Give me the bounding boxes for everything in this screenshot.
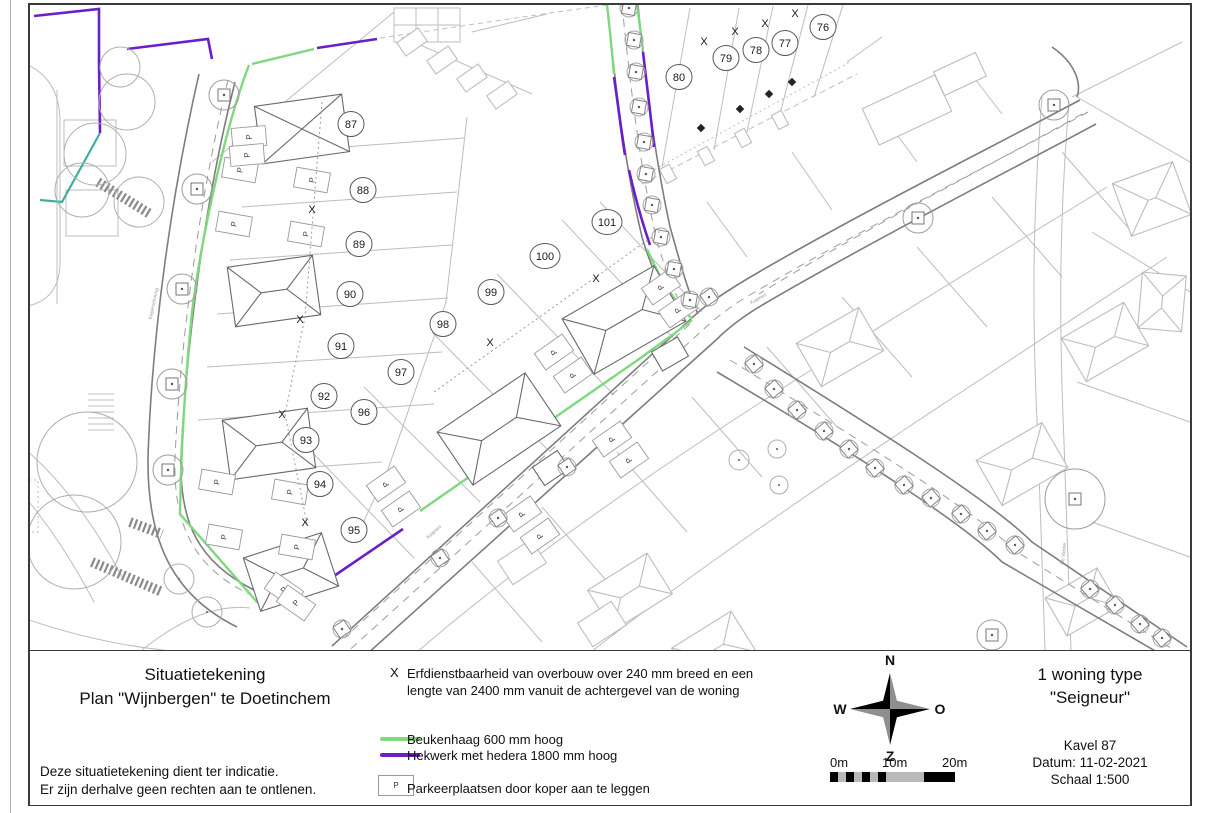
bollard xyxy=(765,90,773,98)
svg-text:101: 101 xyxy=(598,217,616,229)
bollard xyxy=(736,105,744,113)
parking-space: P xyxy=(534,334,573,370)
plot-number: 80 xyxy=(666,65,692,90)
sheet-title: Situatietekening xyxy=(40,663,370,687)
street-tree xyxy=(974,518,999,543)
street-tree xyxy=(634,132,655,153)
drawing-frame: PPPPPPPPPPPPPPPPPPPPPP XXXXXXXXXX 767778… xyxy=(28,3,1192,806)
street-tree xyxy=(741,351,766,376)
dwelling-type-line2: "Seigneur" xyxy=(990,686,1190,709)
plot-number: 90 xyxy=(337,282,363,307)
street-tree xyxy=(642,195,663,216)
servitude-x-mark: X xyxy=(592,273,600,285)
compass-rose: N O Z W xyxy=(830,653,950,763)
servitude-x-mark: X xyxy=(791,8,799,20)
lamp-post xyxy=(209,80,239,110)
plot-number: 97 xyxy=(388,360,414,385)
dwelling-type-line1: 1 woning type xyxy=(990,663,1190,686)
lamp-post xyxy=(153,455,183,485)
svg-text:95: 95 xyxy=(348,525,360,537)
servitude-x-mark: X xyxy=(296,314,304,326)
lamp-post xyxy=(1039,90,1069,120)
street-tree xyxy=(784,397,809,422)
street-tree xyxy=(629,97,650,118)
svg-text:77: 77 xyxy=(779,38,791,50)
parking-space: P xyxy=(288,221,325,247)
street-tree xyxy=(862,455,887,480)
plot-number: 96 xyxy=(351,400,377,425)
compass-star xyxy=(850,673,930,745)
servitude-x-mark: X xyxy=(308,204,316,216)
compass-n: N xyxy=(885,653,895,668)
plot-number: 98 xyxy=(430,312,456,337)
plot-number: 93 xyxy=(293,428,319,453)
legend-band: Situatietekening Plan "Wijnbergen" te Do… xyxy=(30,650,1190,805)
street-label: Kuipnes xyxy=(426,524,444,541)
svg-text:P: P xyxy=(242,152,251,158)
servitude-x-mark: X xyxy=(731,26,739,38)
servitude-x-mark: X xyxy=(761,18,769,30)
svg-text:93: 93 xyxy=(300,435,312,447)
street-tree xyxy=(330,617,355,642)
lamp-post xyxy=(903,203,933,233)
parking-space: P xyxy=(229,144,265,167)
street-tree xyxy=(697,285,722,310)
street-label: De Vanne xyxy=(1060,542,1068,565)
disclaimer: Deze situatietekening dient ter indicati… xyxy=(40,763,380,799)
svg-text:89: 89 xyxy=(353,239,365,251)
servitude-x-mark: X xyxy=(486,337,494,349)
street-tree xyxy=(1002,532,1027,557)
site-plan-map: PPPPPPPPPPPPPPPPPPPPPP XXXXXXXXXX 767778… xyxy=(30,5,1190,650)
street-tree xyxy=(636,164,657,185)
servitude-x-mark: X xyxy=(278,409,286,421)
street-tree xyxy=(428,546,453,571)
kavel: Kavel 87 xyxy=(990,737,1190,754)
lamp-post xyxy=(182,174,212,204)
tree-crown xyxy=(99,74,155,130)
plot-number: 100 xyxy=(530,244,560,269)
plot-number: 94 xyxy=(307,472,333,497)
svg-text:80: 80 xyxy=(673,72,685,84)
info-block: 1 woning type "Seigneur" Kavel 87 Datum:… xyxy=(990,663,1190,788)
tree-crown xyxy=(30,495,121,589)
parking-space: P xyxy=(216,211,253,237)
scale-bar: 0m 10m 20m xyxy=(830,755,990,782)
svg-text:100: 100 xyxy=(536,251,554,263)
svg-text:88: 88 xyxy=(357,185,369,197)
plot-number: 77 xyxy=(772,31,798,56)
plot-number: 76 xyxy=(810,15,836,40)
servitude-x-marks: XXXXXXXXXX xyxy=(278,8,799,529)
svg-text:96: 96 xyxy=(358,407,370,419)
svg-text:94: 94 xyxy=(314,479,326,491)
svg-text:92: 92 xyxy=(318,391,330,403)
plot-number: 91 xyxy=(328,334,354,359)
schaal: Schaal 1:500 xyxy=(990,771,1190,788)
svg-text:99: 99 xyxy=(485,287,497,299)
lamp-post xyxy=(1045,469,1105,529)
title-block: Situatietekening Plan "Wijnbergen" te Do… xyxy=(40,663,370,711)
svg-text:87: 87 xyxy=(345,119,357,131)
svg-text:97: 97 xyxy=(395,367,407,379)
plot-number: 78 xyxy=(743,38,769,63)
servitude-x-mark: X xyxy=(700,36,708,48)
page-edge-line xyxy=(10,0,11,813)
tree-crown xyxy=(100,47,140,87)
scale-bar-blocks xyxy=(830,772,955,782)
plot-number: 88 xyxy=(350,178,376,203)
plot-number: 92 xyxy=(311,384,337,409)
svg-text:79: 79 xyxy=(720,53,732,65)
servitude-x-mark: X xyxy=(301,517,309,529)
plot-number: 95 xyxy=(341,518,367,543)
lamp-post xyxy=(157,369,187,399)
parking-space: P xyxy=(294,167,331,193)
lamp-post xyxy=(977,620,1007,650)
street-tree xyxy=(651,227,672,248)
svg-text:P: P xyxy=(244,134,253,140)
drawing-sheet: PPPPPPPPPPPPPPPPPPPPPP XXXXXXXXXX 767778… xyxy=(0,0,1220,813)
svg-text:90: 90 xyxy=(344,289,356,301)
plot-number: 89 xyxy=(346,232,372,257)
lamp-post xyxy=(167,274,197,304)
svg-text:98: 98 xyxy=(437,319,449,331)
plot-number: 101 xyxy=(592,210,622,235)
x-mark-icon: X xyxy=(390,665,399,680)
street-tree xyxy=(918,485,943,510)
street-tree xyxy=(486,506,511,531)
street-tree xyxy=(948,501,973,526)
parking-cells: PPPPPPPPPPPPPPPPPPPPPP xyxy=(199,126,698,621)
plot-number: 87 xyxy=(338,112,364,137)
bollard xyxy=(697,124,705,132)
plan-name: Plan "Wijnbergen" te Doetinchem xyxy=(40,687,370,711)
compass-w: W xyxy=(833,701,847,717)
map-area: PPPPPPPPPPPPPPPPPPPPPP XXXXXXXXXX 767778… xyxy=(30,5,1190,650)
street-tree xyxy=(1127,611,1152,636)
datum: Datum: 11-02-2021 xyxy=(990,754,1190,771)
street-tree xyxy=(761,376,786,401)
parking-space: P xyxy=(366,466,405,502)
plot-number: 79 xyxy=(713,46,739,71)
parking-space: P xyxy=(206,524,243,550)
street-tree xyxy=(1149,625,1174,650)
parking-space: P xyxy=(381,491,420,527)
compass-o: O xyxy=(935,701,946,717)
svg-text:76: 76 xyxy=(817,22,829,34)
svg-text:78: 78 xyxy=(750,45,762,57)
svg-text:91: 91 xyxy=(335,341,347,353)
parking-space: P xyxy=(272,479,309,505)
plot-number: 99 xyxy=(478,280,504,305)
